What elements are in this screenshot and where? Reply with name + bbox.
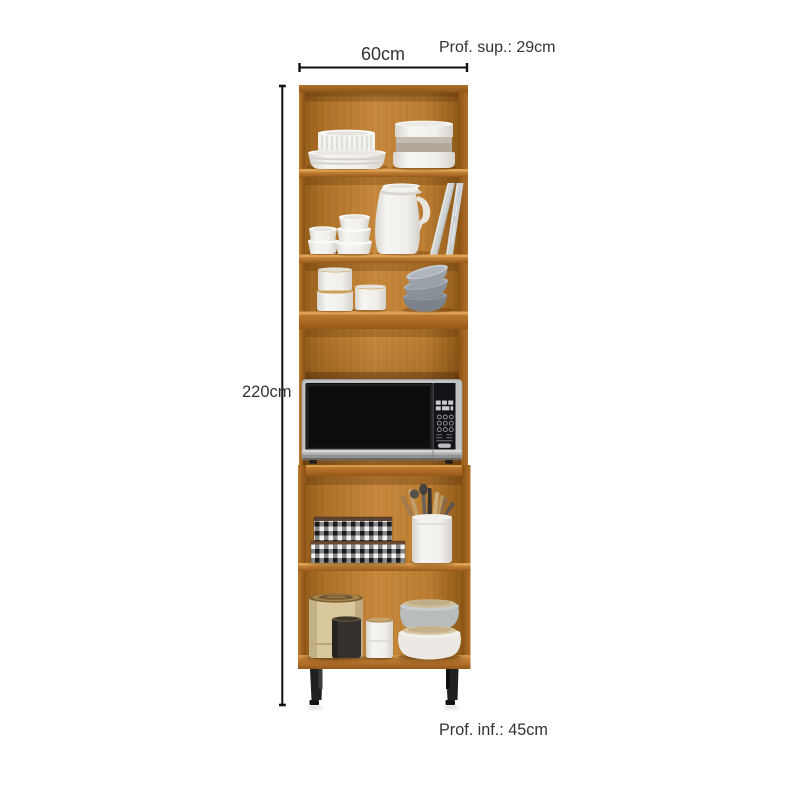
svg-text:60cm: 60cm: [361, 44, 405, 64]
svg-text:220cm: 220cm: [242, 383, 292, 401]
svg-text:Prof. inf.: 45cm: Prof. inf.: 45cm: [439, 721, 548, 739]
svg-text:Prof. sup.: 29cm: Prof. sup.: 29cm: [439, 39, 556, 56]
